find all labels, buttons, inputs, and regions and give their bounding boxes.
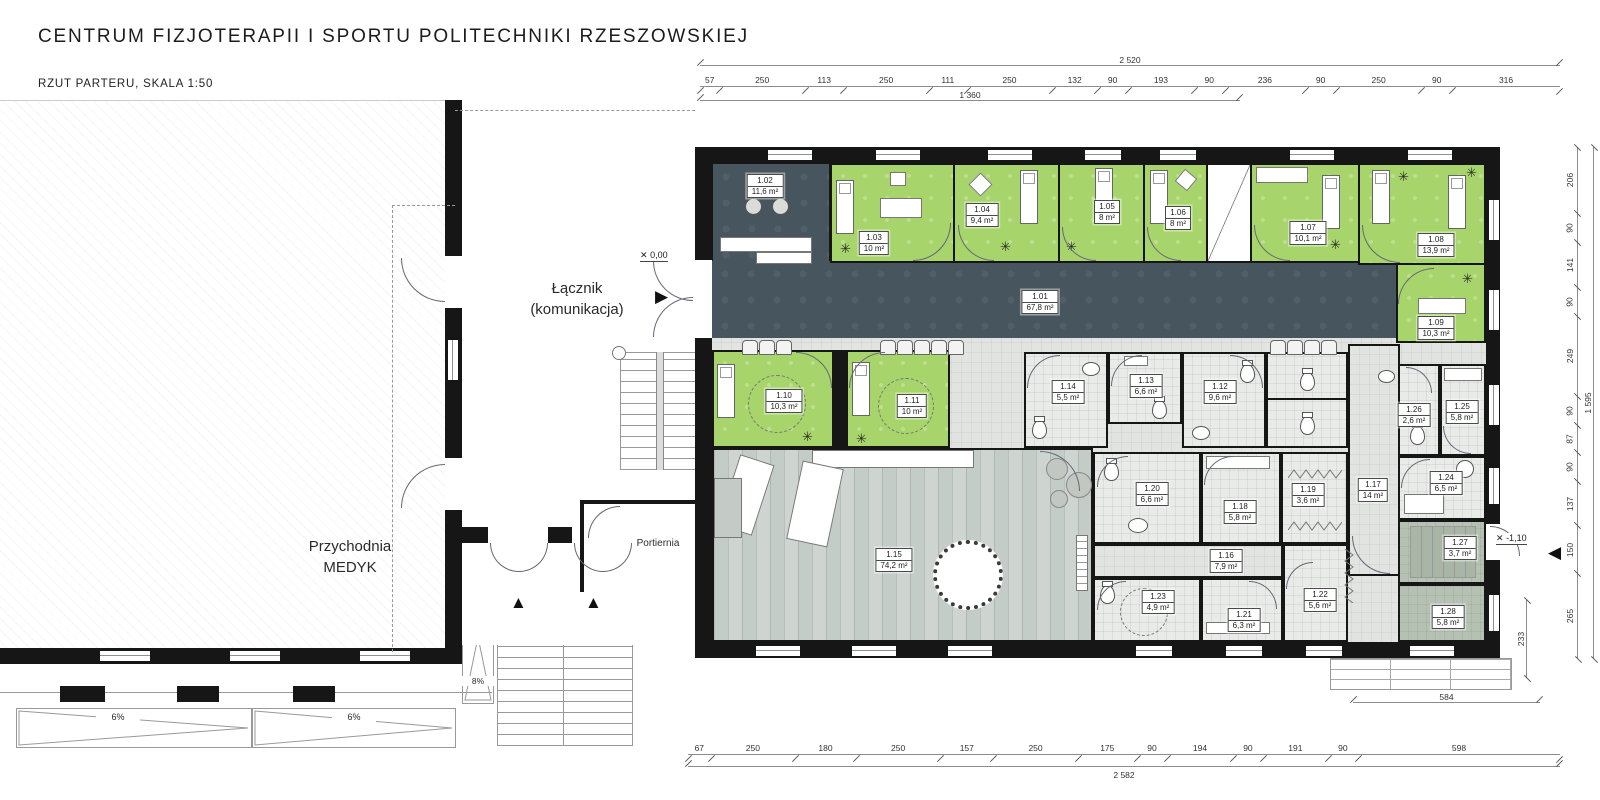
annex-door-gap-1	[445, 256, 462, 308]
dimension-segment: 90	[1305, 74, 1336, 87]
bench-1.07	[1256, 167, 1308, 183]
dimension-segment: 598	[1358, 742, 1560, 755]
floor-plan-sheet: CENTRUM FIZJOTERAPII I SPORTU POLITECHNI…	[0, 0, 1600, 800]
dimension-segment: 180	[795, 742, 856, 755]
dimension-segment: 90	[1233, 742, 1263, 755]
waiting-chair	[1287, 340, 1303, 355]
dimension-segment: 250	[1336, 74, 1421, 87]
dim-right-overall-value: 1 595	[1583, 392, 1593, 413]
dimension-segment: 157	[940, 742, 993, 755]
room-label-1.20: 1.206,6 m²	[1136, 482, 1169, 506]
dimension-segment: 87	[1563, 425, 1578, 453]
dimension-segment: 249	[1563, 316, 1578, 396]
dimension-segment: 111	[929, 74, 967, 87]
dimension-value: 250	[755, 75, 769, 85]
room-label-1.21: 1.216,3 m²	[1228, 608, 1261, 632]
dimension-value: 236	[1258, 75, 1272, 85]
ramp-mid-label: 6%	[332, 712, 376, 722]
dimension-segment: 236	[1225, 74, 1306, 87]
room-1.16-komunikacja-1	[1093, 544, 1283, 578]
dimension-segment: 193	[1128, 74, 1194, 87]
window-top-7	[1408, 150, 1452, 160]
annex-window-3	[360, 651, 410, 661]
wall-bars	[1076, 535, 1088, 591]
dimension-segment: 250	[843, 74, 928, 87]
level-marker-minus: ✕ -1,10	[1496, 533, 1527, 545]
room-label-1.25: 1.255,8 m²	[1446, 400, 1479, 424]
dim-bottom-segments: 67 250 180 250 157 250 175 90 194 90 191…	[688, 742, 1560, 755]
room-label-1.19: 1.193,6 m²	[1292, 483, 1325, 507]
room-label-1.22: 1.225,6 m²	[1304, 588, 1337, 612]
room-label-1.26: 1.262,6 m²	[1398, 403, 1431, 427]
roof-dashed-line	[455, 110, 695, 111]
room-label-1.10: 1.1010,3 m²	[765, 389, 802, 413]
room-label-1.13: 1.136,6 m²	[1130, 374, 1163, 398]
window-bottom-7	[1410, 646, 1454, 656]
dimension-value: 57	[705, 75, 714, 85]
side-entrance-arrow-icon: ◀	[1548, 544, 1561, 561]
window-bottom-1	[756, 646, 800, 656]
dimension-value: 90	[1565, 297, 1575, 306]
window-top-4	[1085, 150, 1121, 160]
exercise-ring	[933, 540, 1003, 610]
room-label-1.03: 1.0310 m²	[859, 231, 889, 255]
dimension-value: 249	[1565, 349, 1575, 363]
desk-1.03	[880, 198, 922, 218]
dimension-value: 250	[1372, 75, 1386, 85]
dimension-value: 90	[1108, 75, 1117, 85]
dimension-value: 150	[1565, 543, 1575, 557]
window-bottom-5	[1226, 646, 1262, 656]
waiting-chair	[1304, 340, 1320, 355]
waiting-chair	[914, 340, 930, 355]
window-right-5	[1489, 595, 1499, 631]
dimension-segment: 90	[1563, 287, 1578, 316]
stool-icon: ✳	[1462, 272, 1473, 285]
window-top-5	[1160, 150, 1196, 160]
level-minus-value: -1,10	[1506, 533, 1527, 543]
roof-dashed-line-v	[392, 205, 393, 652]
room-label-1.18: 1.185,8 m²	[1224, 500, 1257, 524]
entry-arrow-1-icon: ▲	[510, 594, 527, 611]
dimension-value: 90	[1316, 75, 1325, 85]
treadmill	[714, 478, 742, 538]
level-cross-icon-2: ✕	[1496, 533, 1504, 543]
bench-1.15	[812, 450, 974, 468]
room-label-1.12: 1.129,6 m²	[1204, 380, 1237, 404]
waiting-chair	[948, 340, 964, 355]
level-zero-value: 0,00	[650, 250, 668, 260]
therapy-bed-1.08a	[1372, 170, 1390, 224]
dimension-segment: 194	[1167, 742, 1233, 755]
dim-bottom-overall: 2 582	[688, 766, 1560, 767]
ramp-west-label: 6%	[96, 712, 140, 722]
dimension-segment: 137	[1563, 482, 1578, 526]
dimension-value: 90	[1565, 406, 1575, 415]
window-right-4	[1489, 468, 1499, 504]
rail-pier-3	[293, 686, 335, 702]
dim-top-segments: 57 250 113 250 111 250 132 90 193 90 236…	[700, 74, 1560, 87]
dimension-segment: 132	[1052, 74, 1097, 87]
dimension-segment: 265	[1563, 574, 1578, 659]
dimension-value: 175	[1100, 743, 1114, 753]
exercise-ball-3	[1050, 490, 1068, 508]
dimension-segment: 141	[1563, 242, 1578, 287]
main-entrance-arrow-icon: ▶	[655, 288, 668, 305]
toilet-stall-1	[1300, 372, 1315, 391]
dimension-value: 111	[941, 75, 954, 85]
window-top-1	[768, 150, 812, 160]
dim-top-sub: 1 360	[700, 100, 1240, 101]
dimension-value: 191	[1288, 743, 1302, 753]
therapy-bed-1.08b	[1448, 175, 1466, 229]
waiting-chair	[776, 340, 792, 355]
dim-top-overall-value: 2 520	[1119, 55, 1140, 65]
dimension-segment: 67	[688, 742, 711, 755]
lacznik-label-line2: (komunikacja)	[530, 301, 623, 318]
room-label-1.15: 1.1574,2 m²	[875, 548, 912, 572]
dimension-value: 132	[1068, 75, 1082, 85]
dimension-value: 193	[1154, 75, 1168, 85]
main-entrance-gap	[695, 260, 712, 338]
toilet-1.26	[1410, 426, 1425, 445]
chair-1.03	[890, 172, 906, 186]
stool-icon: ✳	[1398, 170, 1409, 183]
window-bottom-2	[852, 646, 896, 656]
dimension-value: 90	[1243, 743, 1252, 753]
table-1.24	[1404, 494, 1444, 514]
window-bottom-4	[1136, 646, 1172, 656]
dimension-segment: 90	[1194, 74, 1225, 87]
dimension-value: 206	[1565, 173, 1575, 187]
dimension-segment: 90	[1563, 453, 1578, 482]
dimension-segment: 250	[711, 742, 795, 755]
therapy-bed-1.03	[836, 180, 854, 234]
dimension-value: 90	[1565, 223, 1575, 232]
annex-label-line2: MEDYK	[323, 559, 376, 576]
dimension-segment: 250	[856, 742, 940, 755]
shower-zigzag-1.19b	[1288, 520, 1342, 532]
room-label-1.02: 1.0211,6 m²	[747, 174, 784, 198]
reception-stool-1	[745, 198, 762, 215]
room-label-1.24: 1.246,5 m²	[1430, 471, 1463, 495]
shower-zigzag-1.19a	[1288, 468, 1342, 480]
dimension-segment: 250	[967, 74, 1052, 87]
waiting-chair	[931, 340, 947, 355]
dim-right-overall: 1 595	[1593, 147, 1594, 659]
dimension-segment: 250	[993, 742, 1077, 755]
dimension-segment: 191	[1263, 742, 1328, 755]
room-label-1.07: 1.0710,1 m²	[1289, 221, 1326, 245]
stool-icon: ✳	[1000, 240, 1011, 253]
stool-icon: ✳	[1330, 238, 1341, 251]
stool-icon: ✳	[856, 432, 867, 445]
dimension-value: 90	[1338, 743, 1347, 753]
window-top-6	[1290, 150, 1334, 160]
room-label-1.11: 1.1110 m²	[897, 394, 927, 418]
waiting-chair	[1321, 340, 1337, 355]
dim-top-sub-value: 1 360	[959, 90, 980, 100]
therapy-bed-1.04	[1020, 170, 1038, 224]
room-label-1.01: 1.0167,8 m²	[1021, 290, 1058, 314]
dim-top-overall: 2 520	[700, 65, 1560, 66]
dim-bottom-overall-value: 2 582	[1113, 770, 1134, 780]
toilet-1.14	[1032, 420, 1047, 439]
waiting-chair	[759, 340, 775, 355]
waiting-chair	[1270, 340, 1286, 355]
window-bottom-3	[948, 646, 992, 656]
room-label-1.17: 1.1714 m²	[1358, 478, 1388, 502]
rail-pier-1	[60, 686, 105, 702]
window-right-3	[1489, 385, 1499, 425]
dimension-value: 90	[1147, 743, 1156, 753]
reception-counter	[720, 237, 812, 252]
level-marker-zero: ✕ 0,00	[640, 250, 668, 262]
staircase-rail	[656, 352, 664, 470]
annex-door-gap-2	[445, 458, 462, 510]
dimension-value: 250	[891, 743, 905, 753]
annex-window-1	[100, 651, 150, 661]
dimension-segment: 90	[1421, 74, 1452, 87]
dimension-value: 67	[695, 743, 704, 753]
page-title: CENTRUM FIZJOTERAPII I SPORTU POLITECHNI…	[38, 26, 749, 48]
waiting-chair	[742, 340, 758, 355]
reception-counter-return	[756, 252, 812, 264]
dim-right-segments: 206 90 141 90 249 90 87 90 137 150 265	[1563, 147, 1578, 659]
page-subtitle: RZUT PARTERU, SKALA 1:50	[38, 78, 213, 90]
dimension-value: 87	[1565, 434, 1575, 443]
staircase-handrail-post	[612, 346, 626, 360]
sink-1.26	[1378, 370, 1395, 383]
dimension-segment: 250	[719, 74, 804, 87]
dimension-segment: 90	[1097, 74, 1128, 87]
window-right-1	[1489, 200, 1499, 240]
sink-1.12	[1192, 426, 1210, 440]
dimension-value: 265	[1565, 609, 1575, 623]
room-label-1.28: 1.285,8 m²	[1432, 605, 1465, 629]
window-top-2	[876, 150, 920, 160]
rail-pier-2	[177, 686, 219, 702]
dimension-value: 250	[879, 75, 893, 85]
dimension-value: 137	[1565, 497, 1575, 511]
sink-1.14	[1082, 362, 1100, 376]
dimension-value: 250	[1028, 743, 1042, 753]
shower-zigzag-1.22	[1343, 549, 1355, 603]
room-label-1.23: 1.234,9 m²	[1142, 590, 1175, 614]
level-cross-icon: ✕	[640, 250, 648, 260]
dimension-value: 180	[818, 743, 832, 753]
waiting-chair	[897, 340, 913, 355]
room-label-1.16: 1.167,9 m²	[1210, 549, 1243, 573]
toilet-1.13	[1152, 400, 1167, 419]
room-label-1.14: 1.145,5 m²	[1052, 380, 1085, 404]
dimension-segment: 150	[1563, 526, 1578, 574]
dimension-value: 194	[1193, 743, 1207, 753]
dimension-segment: 90	[1137, 742, 1167, 755]
room-label-1.05: 1.058 m²	[1094, 200, 1120, 224]
dimension-segment: 90	[1563, 213, 1578, 242]
dimension-value: 250	[1002, 75, 1016, 85]
entry-arrow-2-icon: ▲	[585, 594, 602, 611]
lacznik-label-line1: Łącznik	[552, 280, 603, 297]
stool-icon: ✳	[1466, 166, 1477, 179]
service-vestibule	[1206, 163, 1252, 263]
stool-icon: ✳	[802, 430, 813, 443]
annex-window-2	[230, 651, 280, 661]
dimension-segment: 57	[700, 74, 719, 87]
dimension-value: 250	[746, 743, 760, 753]
lacznik-label: Łącznik (komunikacja)	[492, 278, 662, 320]
annex-label: Przychodnia MEDYK	[270, 536, 430, 578]
toilet-stall-2	[1300, 416, 1315, 435]
annex-label-line1: Przychodnia	[309, 538, 392, 555]
dimension-value: 90	[1432, 75, 1441, 85]
dimension-segment: 90	[1563, 396, 1578, 425]
therapy-bed-1.10	[717, 364, 735, 418]
dimension-segment: 206	[1563, 147, 1578, 213]
dimension-value: 157	[960, 743, 974, 753]
dimension-segment: 90	[1328, 742, 1358, 755]
room-label-1.27: 1.273,7 m²	[1444, 536, 1477, 560]
dimension-segment: 113	[805, 74, 844, 87]
dimension-value: 113	[817, 75, 831, 85]
stool-icon: ✳	[840, 242, 851, 255]
roof-dashed-line-2	[392, 205, 455, 206]
reception-stool-2	[772, 198, 789, 215]
lacznik-south-wall-2	[548, 527, 572, 543]
window-right-2	[1489, 290, 1499, 330]
dim-233: 233	[1526, 600, 1527, 678]
room-label-1.06: 1.068 m²	[1165, 206, 1191, 230]
dimension-value: 316	[1499, 75, 1513, 85]
window-top-3	[988, 150, 1032, 160]
dim-584-value: 584	[1439, 692, 1453, 702]
lacznik-south-wall-1	[462, 527, 488, 543]
stall-divider	[1268, 398, 1346, 400]
sink-1.20	[1128, 518, 1148, 533]
dimension-segment: 175	[1078, 742, 1137, 755]
annex-wall-window	[448, 340, 458, 380]
ramp-entry-label: 8%	[459, 676, 497, 686]
room-label-1.04: 1.049,4 m²	[966, 203, 999, 227]
dimension-value: 141	[1565, 258, 1575, 272]
exterior-steps-east	[1330, 658, 1512, 690]
window-bottom-6	[1306, 646, 1342, 656]
dim-233-value: 233	[1516, 632, 1526, 646]
dimension-segment: 316	[1452, 74, 1560, 87]
dim-584: 584	[1353, 702, 1540, 703]
room-label-1.09: 1.0910,3 m²	[1417, 316, 1454, 340]
room-label-1.08: 1.0813,9 m²	[1417, 233, 1454, 257]
dimension-value: 90	[1565, 463, 1575, 472]
dimension-value: 90	[1205, 75, 1214, 85]
dimension-value: 598	[1452, 743, 1466, 753]
lockers-1.25	[1444, 368, 1482, 381]
